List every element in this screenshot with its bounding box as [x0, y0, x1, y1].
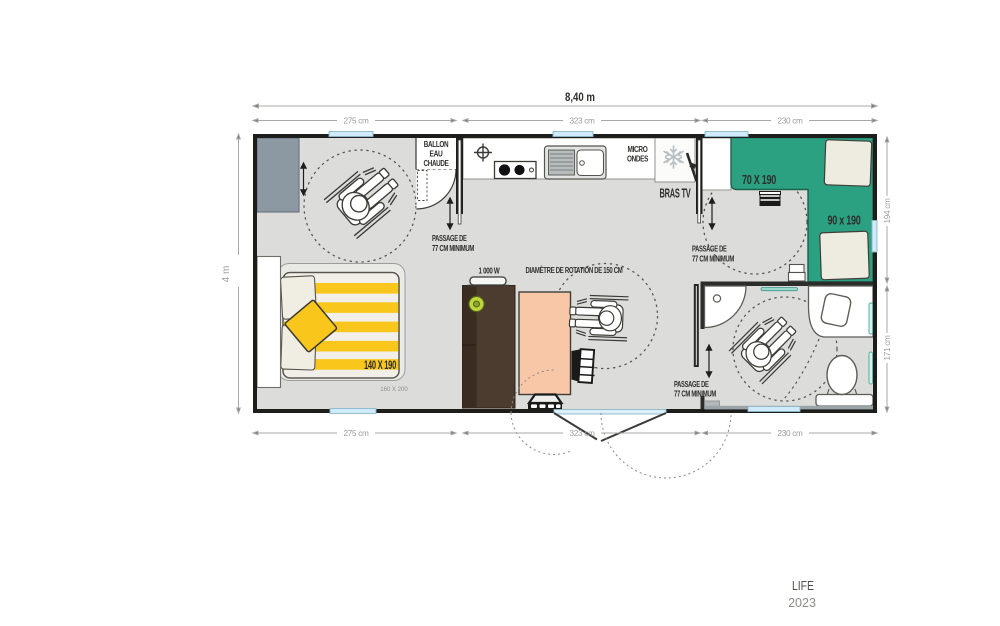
svg-text:CHAUDE: CHAUDE: [424, 159, 450, 168]
svg-text:323 cm: 323 cm: [569, 117, 595, 126]
svg-text:275 cm: 275 cm: [343, 117, 369, 126]
svg-text:ONDES: ONDES: [627, 155, 649, 164]
svg-text:77 CM MINIMUM: 77 CM MINIMUM: [692, 255, 734, 264]
svg-text:PASSAGE DE: PASSAGE DE: [674, 380, 709, 389]
svg-text:MICRO: MICRO: [628, 145, 648, 154]
svg-text:4 m: 4 m: [221, 266, 232, 283]
svg-text:1 000 W: 1 000 W: [479, 266, 501, 275]
svg-text:90 x 190: 90 x 190: [828, 213, 861, 228]
svg-text:160 X 200: 160 X 200: [380, 386, 408, 393]
svg-text:PASSAGE DE: PASSAGE DE: [692, 245, 727, 254]
svg-text:323 cm: 323 cm: [569, 429, 595, 438]
svg-text:171 cm: 171 cm: [883, 335, 892, 361]
svg-text:BRAS TV: BRAS TV: [660, 187, 692, 201]
svg-text:194 cm: 194 cm: [883, 198, 892, 224]
svg-text:PASSAGE DE: PASSAGE DE: [432, 234, 467, 243]
svg-text:70 X 190: 70 X 190: [742, 172, 776, 187]
svg-text:BALLON: BALLON: [424, 140, 449, 149]
svg-text:77 CM MINIMUM: 77 CM MINIMUM: [432, 244, 474, 253]
svg-text:8,40 m: 8,40 m: [565, 92, 595, 104]
svg-text:77 CM MINIMUM: 77 CM MINIMUM: [674, 390, 716, 399]
svg-text:EAU: EAU: [430, 150, 444, 159]
svg-text:230 cm: 230 cm: [777, 429, 803, 438]
svg-text:140 X 190: 140 X 190: [364, 360, 396, 372]
svg-text:LIFE: LIFE: [792, 579, 814, 593]
svg-text:DIAMÈTRE DE ROTATION DE 150 CM: DIAMÈTRE DE ROTATION DE 150 CM: [526, 266, 624, 275]
svg-text:2023: 2023: [788, 596, 816, 610]
svg-text:275 cm: 275 cm: [343, 429, 369, 438]
svg-text:230 cm: 230 cm: [777, 117, 803, 126]
